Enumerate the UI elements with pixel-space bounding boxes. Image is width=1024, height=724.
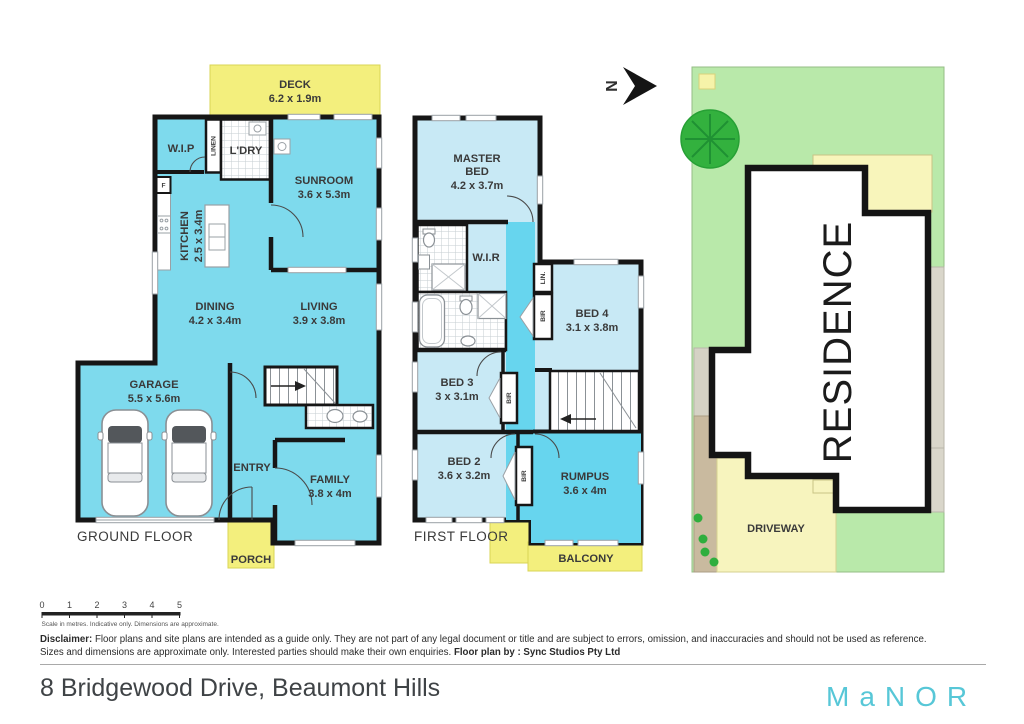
closet-label-lin: LIN. (540, 272, 547, 285)
deck-area (210, 65, 380, 117)
scale-tick: 3 (122, 600, 127, 610)
room-label-balcony: BALCONY (558, 553, 614, 565)
driveway-label: DRIVEWAY (747, 523, 805, 535)
scale-caption: Scale in metres. Indicative only. Dimens… (42, 621, 219, 628)
stairs-ground (265, 367, 337, 405)
first-floor-plan: MASTER BED 4.2 x 3.7m W.I.R LIN. BIR BED… (412, 115, 643, 571)
room-dims-bed2: 3.6 x 3.2m (438, 470, 491, 482)
car-icon (162, 410, 216, 516)
room-label-ldry: L'DRY (230, 145, 263, 157)
room-label-sunroom: SUNROOM (295, 175, 353, 187)
scale-bar: 0 1 2 3 4 5 Scale in metres. Indicative … (39, 600, 218, 628)
room-dims-bed4: 3.1 x 3.8m (566, 322, 619, 334)
room-dims-rumpus: 3.6 x 4m (563, 485, 607, 497)
room-label-living: LIVING (300, 301, 338, 313)
room-dims-master: 4.2 x 3.7m (451, 180, 504, 192)
room-label-bed3: BED 3 (441, 377, 474, 389)
room-label-entry: ENTRY (233, 462, 271, 474)
room-label-deck: DECK (279, 79, 311, 91)
toilet-icon (460, 300, 472, 315)
scale-tick: 1 (67, 600, 72, 610)
disclaimer-line2: Sizes and dimensions are approximate onl… (40, 647, 451, 658)
room-label-dining: DINING (195, 301, 234, 313)
tree-icon (681, 110, 739, 168)
scale-tick: 4 (149, 600, 154, 610)
fridge-label: F (161, 183, 165, 190)
floorplan-canvas: N (0, 0, 1024, 724)
site-plan: RESIDENCE DRIVEWAY (681, 67, 944, 572)
north-arrow: N (602, 67, 657, 105)
room-dims-sunroom: 3.6 x 5.3m (298, 189, 351, 201)
room-label-master-2: BED (465, 166, 489, 178)
car-icon (98, 410, 152, 516)
room-label-family: FAMILY (310, 474, 351, 486)
manor-logo: MaNOR (826, 681, 977, 713)
room-label-kitchen: KITCHEN (179, 211, 191, 261)
room-dims-bed3: 3 x 3.1m (435, 391, 479, 403)
room-label-garage: GARAGE (129, 379, 179, 391)
closet-label-bir: BIR (521, 470, 528, 482)
room-label-wip: W.I.P (168, 143, 195, 155)
cooktop-icon (158, 216, 171, 233)
room-label-master-1: MASTER (453, 153, 500, 165)
toilet-icon (353, 411, 367, 422)
residence-label: RESIDENCE (816, 221, 860, 463)
room-label-linen: LINEN (211, 136, 218, 156)
divider-line (40, 664, 986, 665)
toilet-icon (424, 233, 435, 247)
property-address: 8 Bridgewood Drive, Beaumont Hills (40, 674, 440, 703)
room-dims-dining: 4.2 x 3.4m (189, 315, 242, 327)
closet-label-bir: BIR (540, 310, 547, 322)
disclaimer-credit: Floor plan by : Sync Studios Pty Ltd (454, 647, 620, 658)
floorplan-page: N (0, 0, 1024, 724)
stairs-first (550, 371, 639, 431)
scale-tick: 0 (39, 600, 44, 610)
room-label-wir: W.I.R (472, 252, 499, 264)
room-label-bed4: BED 4 (576, 308, 610, 320)
room-label-bed2: BED 2 (448, 456, 481, 468)
scale-tick: 5 (177, 600, 182, 610)
scale-bar-line (42, 612, 181, 616)
powder-room-ground (306, 405, 373, 428)
scale-tick: 2 (94, 600, 99, 610)
laundry-tub-icon (249, 122, 266, 135)
basin-icon (274, 139, 290, 154)
disclaimer-line1: Floor plans and site plans are intended … (95, 634, 927, 645)
room-dims-family: 3.8 x 4m (308, 488, 352, 500)
room-dims-living: 3.9 x 3.8m (293, 315, 346, 327)
disclaimer-text: Disclaimer: Floor plans and site plans a… (40, 634, 986, 659)
disclaimer-label: Disclaimer: (40, 634, 92, 645)
room-dims-kitchen: 2.5 x 3.4m (193, 209, 205, 262)
room-dims-deck: 6.2 x 1.9m (269, 93, 322, 105)
ground-floor-plan: DECK 6.2 x 1.9m W.I.P LINEN L'DRY SUNROO… (77, 65, 382, 568)
room-label-rumpus: RUMPUS (561, 471, 610, 483)
room-label-porch: PORCH (231, 554, 271, 566)
north-label: N (602, 80, 619, 92)
closet-label-bir: BIR (506, 392, 513, 404)
ground-floor-label: GROUND FLOOR (77, 529, 193, 544)
room-dims-garage: 5.5 x 5.6m (128, 393, 181, 405)
site-shed (699, 74, 715, 89)
sink-icon (461, 336, 475, 346)
vanity-icon (419, 255, 430, 269)
sink-icon (327, 410, 343, 423)
first-floor-label: FIRST FLOOR (414, 529, 509, 544)
